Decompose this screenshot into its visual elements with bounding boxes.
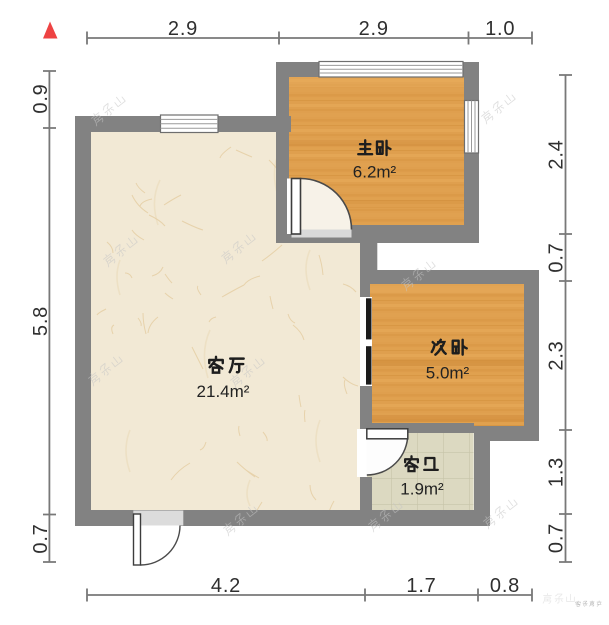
- svg-text:1.9m²: 1.9m²: [400, 480, 444, 499]
- svg-text:0.8: 0.8: [490, 575, 520, 597]
- svg-text:2.4: 2.4: [546, 139, 568, 169]
- svg-text:1.3: 1.3: [546, 457, 568, 487]
- svg-text:2.9: 2.9: [168, 18, 198, 40]
- svg-text:0.7: 0.7: [546, 523, 568, 553]
- svg-text:1.0: 1.0: [485, 18, 515, 40]
- svg-text:5.8: 5.8: [30, 306, 52, 336]
- svg-text:4.2: 4.2: [211, 575, 241, 597]
- svg-text:2.9: 2.9: [359, 18, 389, 40]
- svg-text:0.7: 0.7: [30, 523, 52, 553]
- svg-text:5.0m²: 5.0m²: [426, 364, 470, 383]
- svg-text:6.2m²: 6.2m²: [353, 163, 397, 182]
- svg-text:2.3: 2.3: [546, 340, 568, 370]
- svg-text:0.7: 0.7: [546, 242, 568, 272]
- svg-text:1.7: 1.7: [406, 575, 436, 597]
- svg-text:0.9: 0.9: [30, 83, 52, 113]
- svg-text:21.4m²: 21.4m²: [197, 382, 250, 401]
